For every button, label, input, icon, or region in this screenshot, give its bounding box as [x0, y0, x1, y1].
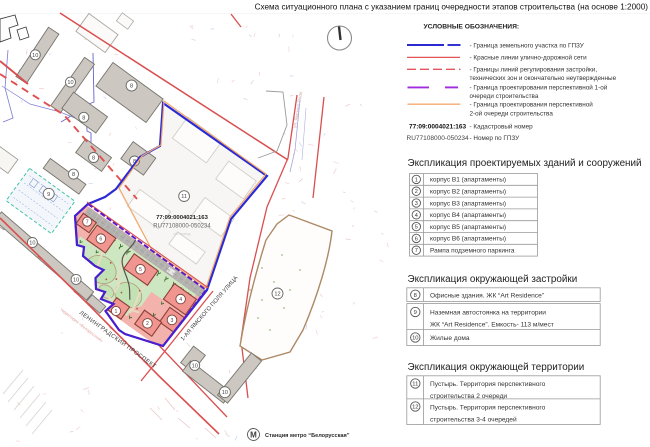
svg-text:10: 10 [73, 277, 79, 283]
svg-text:77:09:0004021:163: 77:09:0004021:163 [409, 124, 466, 131]
svg-text:10: 10 [29, 241, 35, 247]
svg-text:10: 10 [192, 363, 198, 369]
svg-text:- Кадастровый номер: - Кадастровый номер [470, 123, 534, 131]
svg-text:6: 6 [415, 236, 418, 242]
svg-text:2-ой очереди строительства: 2-ой очереди строительства [470, 109, 554, 117]
svg-text:корпус В3 (апартаменты): корпус В3 (апартаменты) [430, 200, 506, 207]
svg-text:8: 8 [130, 84, 133, 90]
svg-text:5: 5 [139, 267, 142, 273]
svg-text:5: 5 [415, 225, 418, 231]
svg-text:Пустырь. Территория перспектив: Пустырь. Территория перспективного [430, 381, 546, 388]
svg-text:7: 7 [415, 248, 418, 254]
svg-text:Экспликация окружающей террито: Экспликация окружающей территории [408, 362, 585, 373]
svg-text:строительства 2 очереди: строительства 2 очереди [430, 393, 507, 400]
svg-text:11: 11 [412, 382, 418, 388]
svg-text:очереди строительства: очереди строительства [470, 93, 539, 100]
svg-text:Экспликация окружающей застрой: Экспликация окружающей застройки [408, 274, 578, 285]
svg-text:1: 1 [115, 309, 118, 315]
svg-text:- Граница проектирования персп: - Граница проектирования перспективной [470, 101, 594, 109]
svg-text:корпус В5 (апартаменты): корпус В5 (апартаменты) [430, 224, 506, 231]
svg-text:77:09:0004021:163: 77:09:0004021:163 [156, 215, 208, 221]
svg-text:8: 8 [92, 156, 95, 162]
svg-text:10: 10 [412, 336, 418, 342]
svg-text:9: 9 [414, 310, 417, 316]
svg-text:Пустырь. Территория перспектив: Пустырь. Территория перспективного [430, 405, 546, 412]
svg-text:8: 8 [82, 115, 85, 121]
svg-text:М: М [250, 431, 257, 440]
svg-text:ЖК “Art Residence”. Емкость- 1: ЖК “Art Residence”. Емкость- 113 м/мест [430, 322, 554, 329]
svg-text:2: 2 [146, 321, 149, 327]
svg-text:Наземная автостоянка на террит: Наземная автостоянка на территории [430, 309, 546, 316]
svg-text:8: 8 [414, 293, 417, 299]
svg-text:11: 11 [181, 194, 187, 200]
svg-text:10: 10 [32, 53, 38, 59]
svg-text:7: 7 [86, 220, 89, 226]
svg-text:RU77108000-050234: RU77108000-050234 [153, 224, 211, 230]
svg-text:- Граница проектирования персп: - Граница проектирования перспективной 1… [470, 84, 608, 92]
svg-text:Станция метро “Белорусская”: Станция метро “Белорусская” [265, 433, 350, 439]
svg-text:- Красные линии улично-дорожно: - Красные линии улично-дорожной сети [470, 54, 588, 62]
svg-text:корпус В1 (апартаменты): корпус В1 (апартаменты) [430, 177, 506, 184]
svg-text:корпус В2 (апартаменты): корпус В2 (апартаменты) [430, 189, 506, 196]
svg-text:8: 8 [72, 172, 75, 178]
svg-text:3: 3 [171, 318, 174, 324]
svg-text:на период: на период [174, 232, 192, 236]
svg-text:4: 4 [179, 297, 182, 303]
svg-text:Рампа подземного паркинга: Рампа подземного паркинга [430, 248, 515, 255]
svg-text:- Номер по ГПЗУ: - Номер по ГПЗУ [470, 135, 521, 142]
svg-text:12: 12 [412, 405, 418, 411]
svg-text:корпус В4 (апартаменты): корпус В4 (апартаменты) [430, 212, 506, 219]
svg-text:12: 12 [274, 292, 280, 298]
svg-text:Схема ситуационного плана с ук: Схема ситуационного плана с указанием гр… [255, 3, 649, 12]
svg-text:2: 2 [415, 189, 418, 195]
svg-text:Жилые дома: Жилые дома [430, 335, 470, 342]
svg-text:3: 3 [415, 201, 418, 207]
svg-text:- Границы линий регулирования: - Границы линий регулирования застройки, [470, 66, 598, 74]
svg-text:корпус В6 (апартаменты): корпус В6 (апартаменты) [430, 236, 506, 243]
svg-text:6: 6 [99, 237, 102, 243]
svg-text:RU77108000-050234: RU77108000-050234 [407, 135, 470, 142]
svg-text:- Граница земельного участка п: - Граница земельного участка по ГПЗУ [470, 42, 585, 49]
svg-text:технических зон и окончательно: технических зон и окончательно неутвержд… [470, 75, 617, 82]
svg-text:Офисные здания. ЖК “Art Reside: Офисные здания. ЖК “Art Residence” [430, 292, 544, 299]
svg-text:4: 4 [415, 213, 418, 219]
svg-text:1: 1 [415, 177, 418, 183]
svg-text:строительства 3-4 очередей: строительства 3-4 очередей [430, 415, 517, 423]
svg-text:УСЛОВНЫЕ ОБОЗНАЧЕНИЯ:: УСЛОВНЫЕ ОБОЗНАЧЕНИЯ: [424, 24, 520, 31]
svg-text:9: 9 [47, 192, 50, 198]
svg-text:Экспликация проектируемых здан: Экспликация проектируемых зданий и соору… [408, 158, 642, 169]
svg-text:10: 10 [222, 390, 228, 396]
svg-text:10: 10 [67, 80, 73, 86]
